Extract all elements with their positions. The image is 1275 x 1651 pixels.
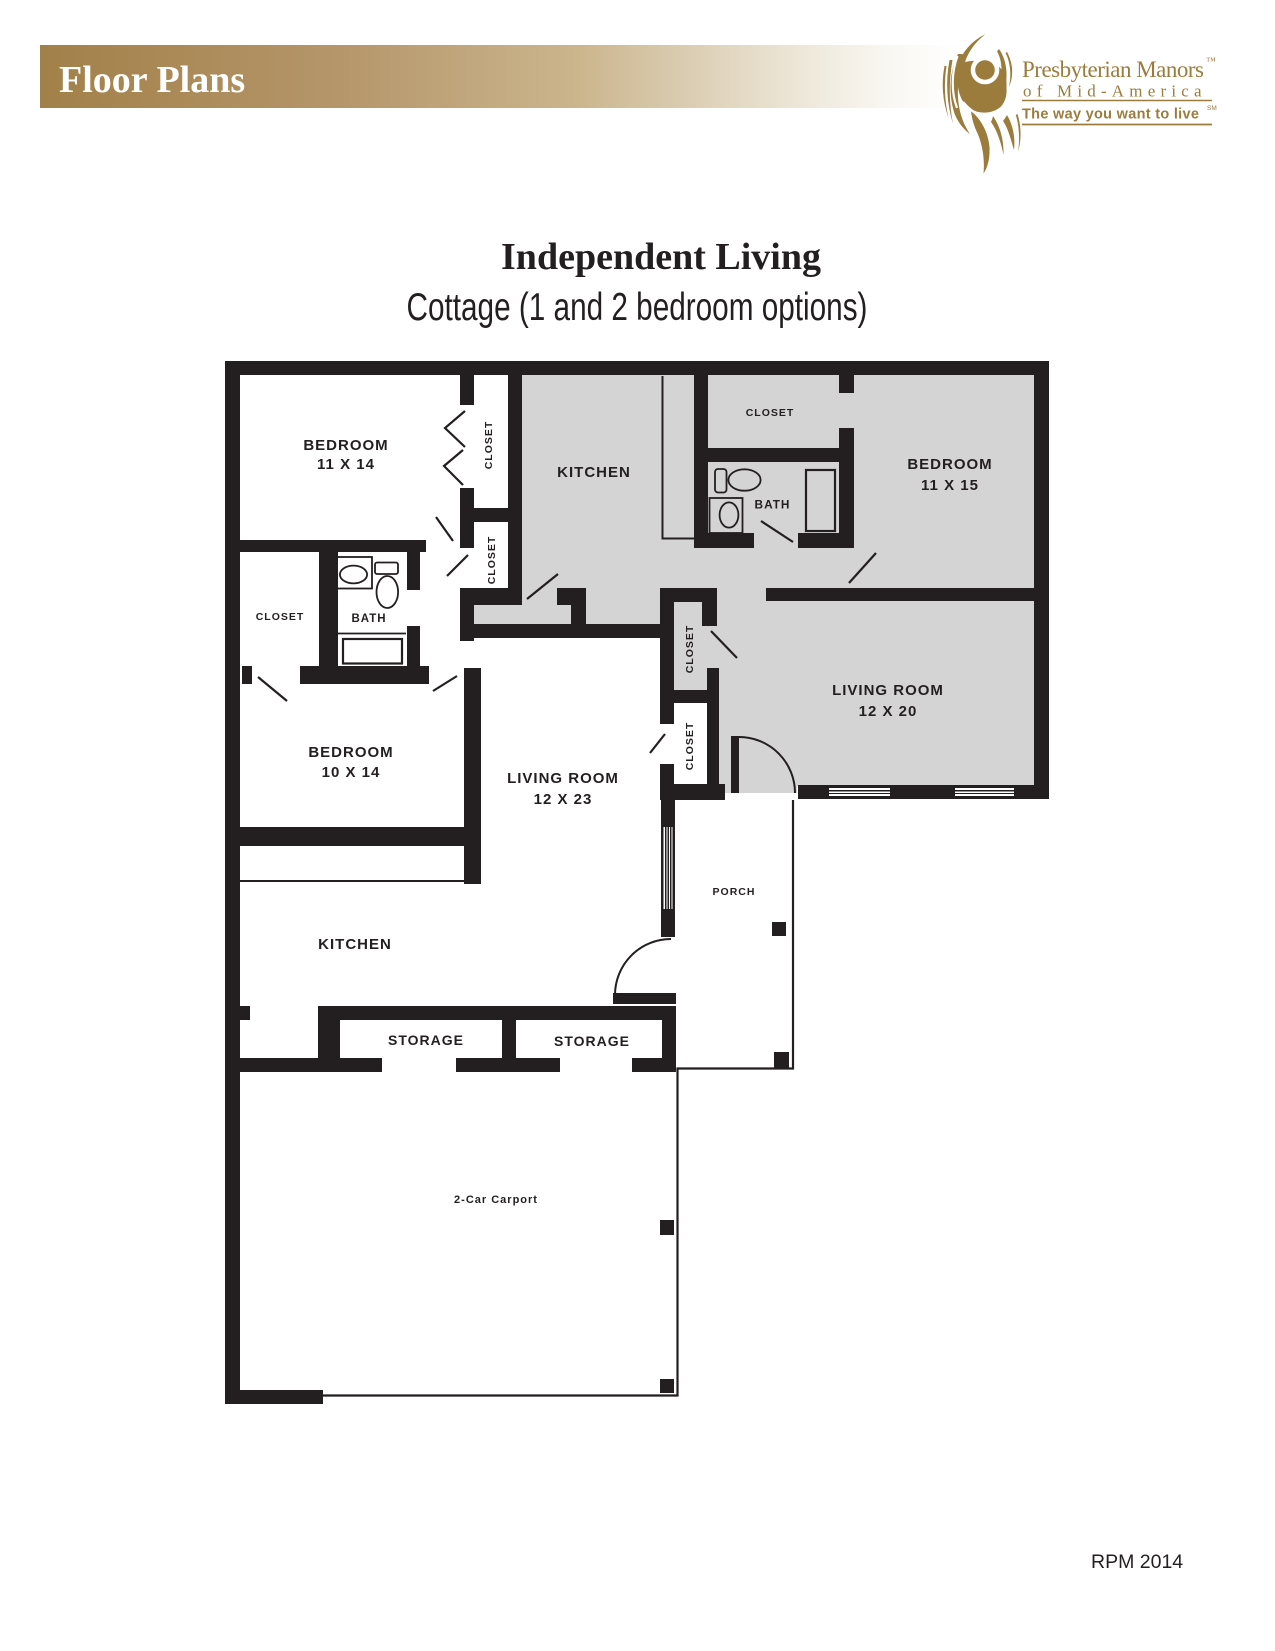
svg-text:2-Car Carport: 2-Car Carport xyxy=(454,1194,538,1206)
svg-text:12 X 20: 12 X 20 xyxy=(859,703,918,720)
svg-text:10 X 14: 10 X 14 xyxy=(322,764,381,781)
svg-text:STORAGE: STORAGE xyxy=(388,1032,464,1048)
svg-text:BATH: BATH xyxy=(755,498,791,512)
svg-text:CLOSET: CLOSET xyxy=(256,611,305,623)
svg-text:STORAGE: STORAGE xyxy=(554,1033,630,1049)
svg-text:CLOSET: CLOSET xyxy=(684,722,696,771)
svg-text:BEDROOM: BEDROOM xyxy=(303,437,388,454)
svg-text:11 X 15: 11 X 15 xyxy=(921,477,979,494)
svg-text:The way you want to live: The way you want to live xyxy=(1022,107,1199,123)
svg-text:KITCHEN: KITCHEN xyxy=(318,936,392,953)
svg-text:KITCHEN: KITCHEN xyxy=(557,464,631,481)
svg-text:LIVING ROOM: LIVING ROOM xyxy=(832,682,944,699)
svg-text:CLOSET: CLOSET xyxy=(746,407,795,419)
svg-text:PORCH: PORCH xyxy=(713,886,756,898)
svg-text:BEDROOM: BEDROOM xyxy=(308,744,393,761)
svg-text:12 X 23: 12 X 23 xyxy=(534,791,593,808)
svg-text:BEDROOM: BEDROOM xyxy=(907,456,992,473)
svg-text:11 X 14: 11 X 14 xyxy=(317,456,375,473)
svg-text:CLOSET: CLOSET xyxy=(486,536,498,585)
svg-text:Presbyterian Manors: Presbyterian Manors xyxy=(1022,57,1204,82)
svg-text:CLOSET: CLOSET xyxy=(483,421,495,470)
svg-text:CLOSET: CLOSET xyxy=(684,625,696,674)
svg-text:SM: SM xyxy=(1207,105,1217,112)
svg-text:of Mid-America: of Mid-America xyxy=(1023,82,1207,101)
svg-text:LIVING ROOM: LIVING ROOM xyxy=(507,770,619,787)
svg-text:™: ™ xyxy=(1206,56,1216,67)
svg-text:BATH: BATH xyxy=(351,613,386,625)
